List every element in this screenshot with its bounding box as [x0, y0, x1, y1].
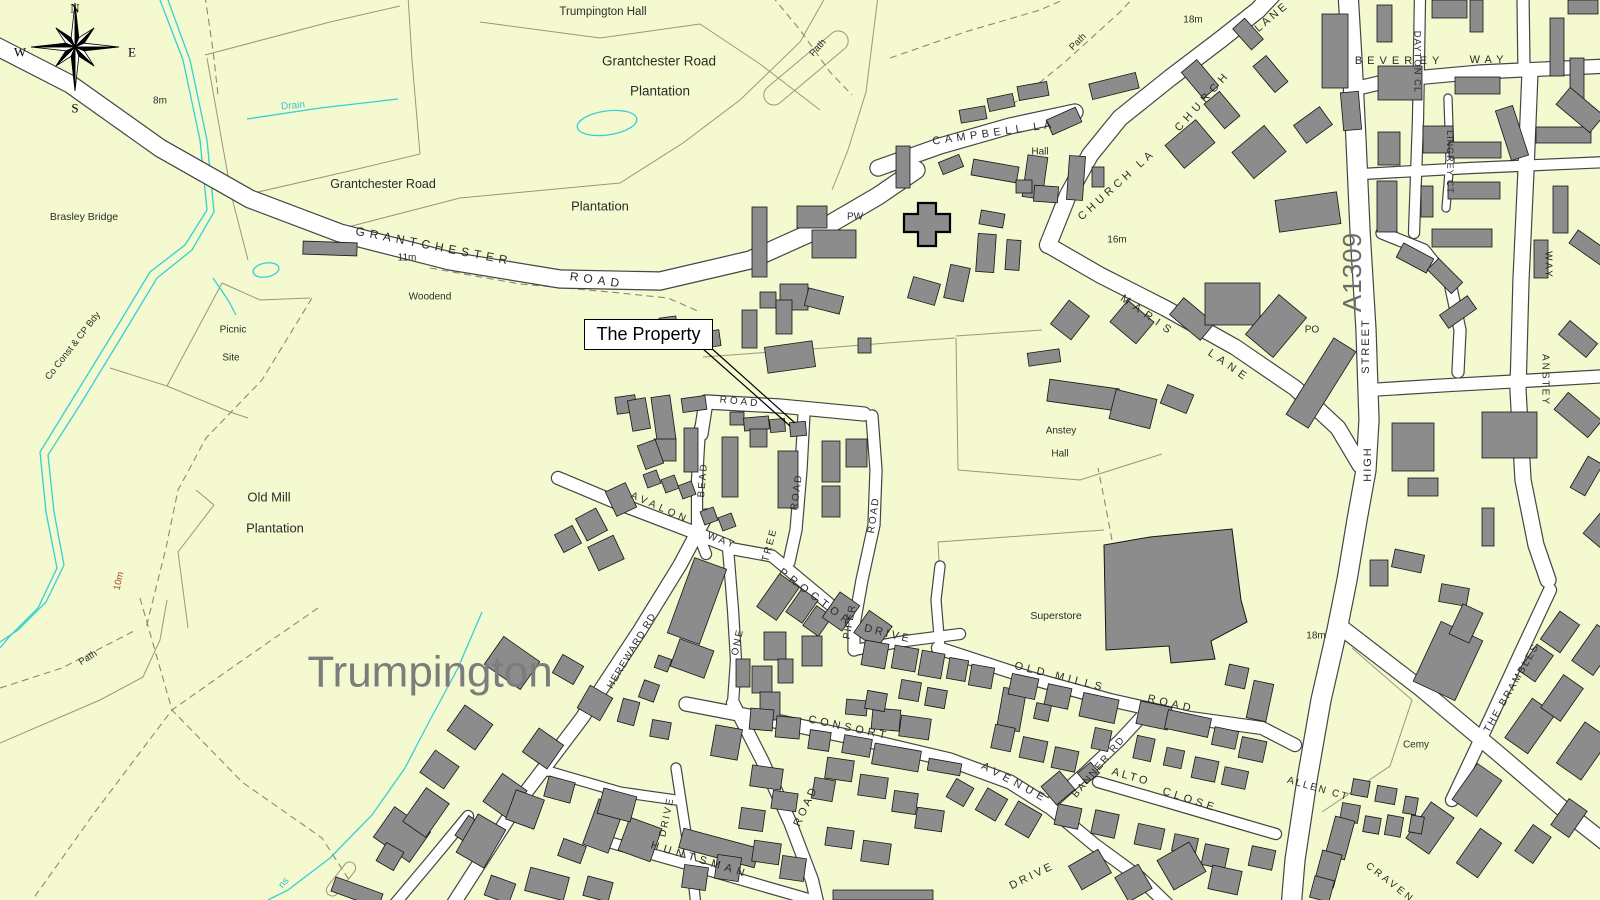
building	[861, 640, 889, 669]
building	[775, 716, 801, 739]
building	[780, 855, 807, 881]
map-label: Superstore	[1030, 610, 1082, 622]
building	[1051, 747, 1079, 773]
building	[1322, 14, 1348, 88]
building	[1482, 508, 1494, 546]
building	[946, 658, 968, 682]
building	[822, 486, 840, 517]
building	[1470, 0, 1483, 32]
building	[750, 765, 784, 790]
building	[303, 241, 357, 256]
map-label: Anstey	[1046, 426, 1077, 437]
map-canvas: NESW8mDrainBrasley BridgeGrantchester Ro…	[0, 0, 1600, 900]
building	[846, 439, 867, 467]
building	[776, 300, 792, 334]
compass-letter: S	[71, 101, 78, 116]
map-label: Trumpington	[307, 648, 552, 697]
building	[1432, 229, 1492, 247]
building	[1409, 815, 1425, 834]
building	[822, 441, 840, 482]
map-label: Cemy	[1403, 740, 1429, 751]
road	[936, 566, 940, 648]
building	[1016, 180, 1032, 193]
building	[845, 699, 867, 716]
building	[1553, 186, 1568, 233]
map-viewport: NESW8mDrainBrasley BridgeGrantchester Ro…	[0, 0, 1600, 900]
map-label: Drain	[281, 99, 306, 112]
building	[1568, 0, 1598, 14]
building	[976, 233, 997, 272]
building	[1340, 91, 1361, 130]
map-label: PW	[847, 212, 864, 223]
building	[682, 864, 709, 890]
building	[825, 757, 855, 782]
building	[1054, 804, 1082, 830]
building	[650, 719, 672, 739]
property-callout-text: The Property	[596, 324, 700, 345]
building	[739, 807, 766, 831]
building	[808, 730, 831, 752]
map-label: Picnic	[220, 325, 247, 336]
building	[752, 840, 782, 865]
map-label: PO	[1305, 325, 1320, 336]
building	[749, 708, 774, 731]
building	[1536, 127, 1591, 143]
building	[1351, 779, 1371, 798]
map-label: Site	[222, 353, 240, 364]
building	[711, 725, 743, 760]
building	[825, 827, 854, 849]
building	[778, 659, 793, 683]
building	[1363, 816, 1382, 835]
building	[789, 421, 806, 436]
building	[1377, 181, 1397, 232]
building	[1378, 132, 1400, 165]
building	[764, 632, 786, 660]
building	[1225, 664, 1249, 689]
building	[730, 412, 744, 425]
compass-letter: E	[128, 45, 136, 60]
building	[1403, 796, 1419, 815]
map-label: Grantchester Road	[602, 54, 716, 69]
building	[1191, 757, 1219, 783]
building	[1377, 5, 1392, 42]
building	[722, 437, 738, 497]
building	[915, 807, 945, 832]
map-label: 11m	[398, 253, 417, 264]
building	[891, 645, 919, 672]
building	[896, 146, 910, 188]
map-label: BEVER	[1355, 55, 1417, 67]
building	[760, 292, 776, 308]
building	[684, 428, 698, 472]
building	[1550, 18, 1564, 76]
building	[802, 636, 822, 666]
building	[1033, 185, 1058, 203]
compass-letter: N	[70, 1, 80, 16]
building	[771, 790, 798, 811]
building	[1432, 0, 1467, 18]
building	[1384, 815, 1403, 837]
building	[1482, 412, 1537, 458]
map-label: Old Mill	[247, 490, 290, 505]
map-label: Hall	[1051, 449, 1068, 460]
map-label: ANSTEY	[1540, 354, 1551, 406]
building	[858, 338, 871, 353]
map-label: STREET	[1360, 318, 1372, 373]
building	[1421, 186, 1433, 217]
building	[1370, 560, 1388, 586]
map-label: 16m	[1107, 235, 1126, 246]
map-label: WAY	[1470, 54, 1509, 66]
building	[899, 679, 922, 701]
building	[1034, 703, 1052, 722]
building	[1375, 785, 1397, 804]
building	[861, 840, 892, 865]
building	[1066, 155, 1085, 200]
building	[865, 690, 888, 711]
building	[1163, 747, 1184, 768]
building	[1449, 142, 1501, 158]
building	[797, 206, 827, 228]
map-label: 8m	[153, 96, 167, 107]
building	[1091, 810, 1119, 838]
map-label: DAYTON CL	[1412, 31, 1423, 94]
map-label: Brasley Bridge	[50, 211, 118, 223]
building	[1005, 240, 1021, 271]
map-label: Grantchester Road	[330, 177, 436, 191]
map-label: 18m	[1306, 631, 1325, 642]
building	[918, 650, 945, 679]
map-label: Woodend	[409, 292, 452, 303]
map-label: Hall	[1031, 147, 1048, 158]
building	[742, 310, 757, 348]
building	[750, 429, 767, 447]
building	[833, 890, 933, 900]
map-label: LINGREY CT	[1445, 130, 1455, 194]
road	[1523, 0, 1524, 70]
map-label: Trumpington Hall	[559, 6, 646, 18]
building	[812, 230, 856, 258]
building	[752, 666, 772, 693]
building	[681, 395, 707, 412]
map-label: WAY	[1543, 251, 1554, 279]
property-callout: The Property	[584, 319, 713, 350]
building	[736, 659, 750, 687]
map-label: Plantation	[571, 199, 629, 214]
building	[1205, 283, 1260, 325]
map-label: Plantation	[630, 84, 690, 99]
compass-letter: W	[14, 45, 27, 60]
building	[858, 774, 889, 799]
building	[1392, 423, 1434, 471]
building	[968, 664, 994, 689]
building	[899, 715, 932, 740]
building	[752, 207, 767, 277]
building	[1092, 167, 1104, 187]
building	[1408, 478, 1438, 496]
building	[925, 687, 948, 708]
map-label: Plantation	[246, 521, 304, 536]
building	[892, 790, 919, 814]
building	[1455, 77, 1500, 94]
map-label: 18m	[1183, 15, 1202, 26]
map-label: A1309	[1337, 232, 1367, 312]
map-label: HIGH	[1362, 446, 1374, 482]
